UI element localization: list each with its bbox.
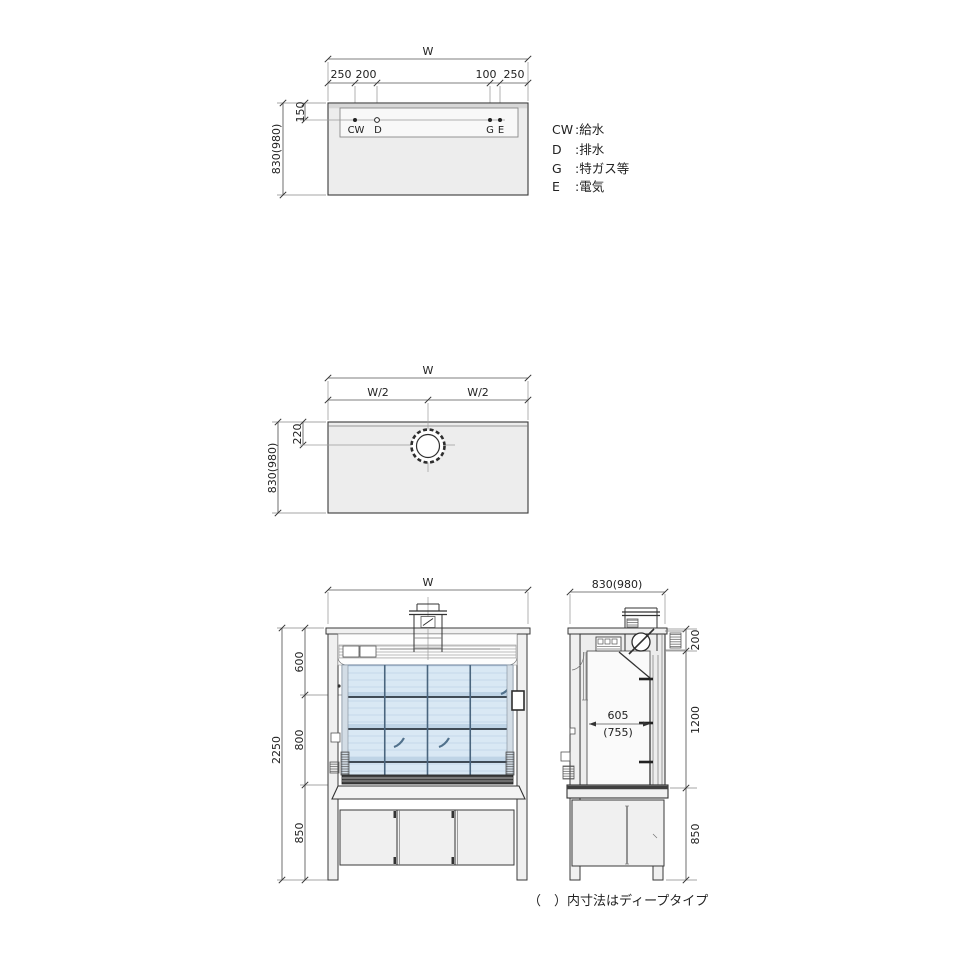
dim-150-label: 150: [294, 102, 307, 123]
control-button-3: [612, 639, 617, 644]
control-button-1: [598, 639, 603, 644]
post-knob: [337, 684, 340, 687]
post-fitting: [331, 733, 340, 742]
duct-plan-220-label: 220: [291, 424, 304, 445]
side-control-box: [596, 637, 621, 651]
side-handle-detail: [561, 752, 570, 761]
duct-plan-depth-label: 830(980): [266, 443, 279, 494]
switch-box-right: [360, 646, 376, 657]
front-800-label: 800: [293, 730, 306, 751]
post-latch-block: [330, 762, 339, 773]
side-depth-label: 830(980): [592, 578, 643, 591]
front-w-label: W: [423, 576, 434, 589]
sash-guide-block-right: [506, 752, 514, 775]
wall-spacer-block: [670, 633, 681, 648]
side-post-fitting: [570, 728, 575, 734]
sash-handle: [512, 691, 524, 710]
dim-200-label: 200: [356, 68, 377, 81]
service-point-e-label: E: [498, 125, 504, 136]
base-cabinet: [340, 810, 514, 865]
duct-motor-block: [627, 619, 638, 627]
service-point-d: [375, 118, 380, 123]
service-point-d-label: D: [374, 125, 382, 136]
cabinet-handle-2-top: [452, 811, 455, 818]
dim-100-label: 100: [476, 68, 497, 81]
side-cabinet: [572, 800, 664, 866]
cabinet-handle-1-top: [394, 811, 397, 818]
service-point-g-label: G: [486, 125, 494, 136]
side-latch-block: [563, 766, 574, 779]
front-left-post: [328, 634, 338, 880]
sash-bottom-rail: [342, 775, 513, 784]
side-back-leg: [653, 866, 663, 880]
service-point-g: [488, 118, 492, 122]
duct-plan-w-label: W: [423, 364, 434, 377]
dim-250-left-label: 250: [331, 68, 352, 81]
service-point-cw-label: CW: [348, 125, 365, 136]
dim-250-right-label: 250: [504, 68, 525, 81]
front-600-label: 600: [293, 652, 306, 673]
sash-guide-block-left: [341, 752, 349, 775]
side-1200-label: 1200: [689, 706, 702, 734]
deep-type-note: （ ）内寸法はディープタイプ: [528, 893, 708, 909]
dim-depth-label: 830(980): [270, 124, 283, 175]
front-850-label: 850: [293, 823, 306, 844]
worktop-front: [332, 786, 525, 799]
fume-hood-drawing: W 250 200 100 250 150 830(980) CW D G E …: [0, 0, 960, 960]
cabinet-handle-1-bottom: [394, 857, 397, 864]
sash-window: [341, 665, 524, 784]
legend-item-d: D:排水: [552, 142, 605, 157]
cabinet-handle-2-bottom: [452, 857, 455, 864]
duct-plan-whalf-left-label: W/2: [367, 386, 389, 399]
control-button-2: [605, 639, 610, 644]
front-right-post: [517, 634, 527, 880]
side-755-label: (755): [603, 726, 633, 739]
duct-plan-whalf-right-label: W/2: [467, 386, 489, 399]
side-850-label: 850: [689, 824, 702, 845]
duct-opening: [417, 435, 440, 458]
legend-item-e: E:電気: [552, 179, 604, 194]
dim-w-label: W: [423, 45, 434, 58]
service-point-e: [498, 118, 502, 122]
drawing-canvas: W 250 200 100 250 150 830(980) CW D G E …: [0, 0, 960, 960]
side-200-label: 200: [689, 630, 702, 651]
side-605-label: 605: [608, 709, 629, 722]
legend-item-cw: CW:給水: [552, 122, 605, 137]
front-2250-label: 2250: [270, 736, 283, 764]
switch-box-left: [343, 646, 359, 657]
service-point-cw: [353, 118, 357, 122]
